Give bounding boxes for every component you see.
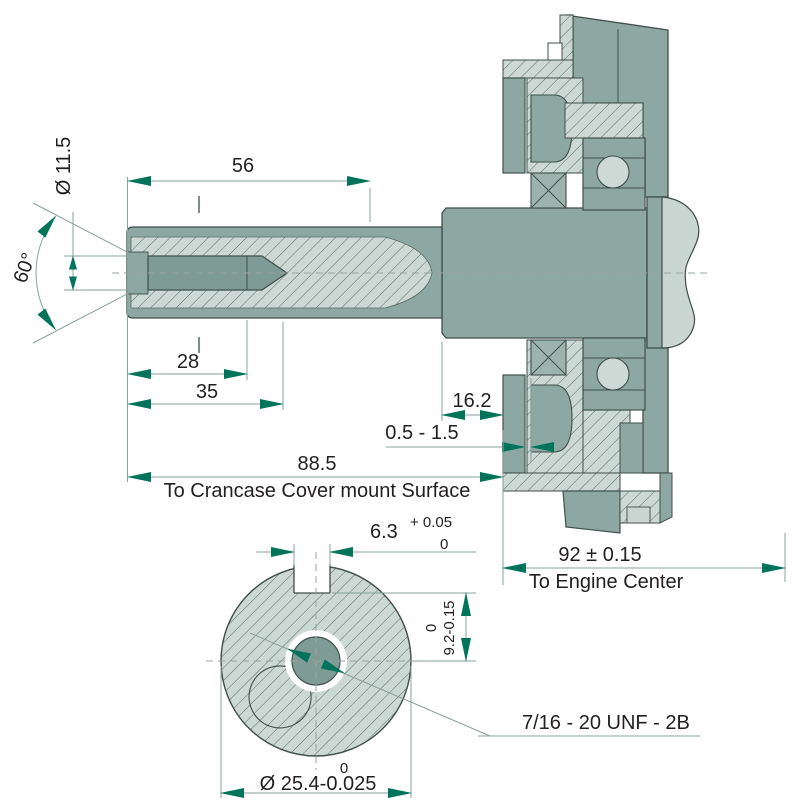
dim-keyway-width: 6.3 (370, 521, 398, 543)
tapped-hole (148, 256, 287, 290)
dim-tip-to-mount: 88.5 (298, 453, 337, 475)
crankcase-bottom-flange (503, 473, 620, 491)
dim-keyway-width-tol-bottom: 0 (440, 536, 448, 553)
cover-wall-bottom (503, 375, 525, 473)
bearing-ball-bottom (597, 358, 629, 390)
rim-notch (548, 43, 562, 61)
dim-chamfer-dia: Ø 11.5 (53, 137, 75, 196)
bearing-housing-top (565, 103, 643, 138)
case-right-sliver (660, 473, 672, 523)
cover-wall-top (503, 78, 525, 173)
dim-step-to-mount: 16.2 (453, 390, 492, 412)
label-mount-surface: To Crancase Cover mount Surface (164, 480, 471, 502)
keyway-notch-fill (294, 556, 330, 593)
dim-keyway-depth-tol-top: 0 (423, 624, 440, 632)
seal-box-top (531, 173, 566, 208)
dimension-step-to-mount: 16.2 (442, 342, 503, 421)
case-bottom-notch (627, 507, 650, 523)
dim-shaft-dia: Ø 25.4-0.025 (260, 773, 377, 795)
dim-center-thread: 7/16 - 20 UNF - 2B (522, 712, 690, 734)
dim-cover-clearance: 0.5 - 1.5 (385, 422, 458, 444)
dim-keyway-width-tol-top: + 0.05 (410, 514, 452, 531)
dimension-hole-depth: 35 (128, 322, 283, 410)
dim-thread-depth: 28 (177, 351, 199, 373)
shaft-section (127, 196, 699, 353)
dimension-keyway-width: 6.3 + 0.05 0 (256, 514, 476, 566)
seal-box-bottom (531, 340, 566, 375)
dim-keyway-length: 56 (232, 155, 254, 177)
case-bottom-wedge (563, 491, 620, 533)
seal-cavity-bottom (531, 385, 572, 452)
dim-hole-depth: 35 (196, 381, 218, 403)
dimension-mount-to-engine-center: 92 ± 0.15 To Engine Center (503, 533, 785, 593)
dimension-chamfer-dia: Ø 11.5 (53, 137, 130, 290)
bearing-ball-top (597, 156, 629, 188)
crankshaft-technical-drawing: 56 Ø 11.5 60° 28 35 16.2 0.5 - 1.5 (0, 0, 800, 800)
dim-keyway-depth: 9.2-0.15 (441, 600, 458, 655)
dim-mount-to-engine-center: 92 ± 0.15 (558, 544, 641, 566)
technical-drawing-page: 56 Ø 11.5 60° 28 35 16.2 0.5 - 1.5 (0, 0, 800, 800)
label-engine-center: To Engine Center (529, 571, 684, 593)
flywheel-bottom-column (643, 340, 668, 473)
dimension-thread-depth: 28 (128, 320, 247, 380)
flywheel-step-bottom (620, 423, 643, 473)
crankcase-top-flange (503, 60, 573, 78)
